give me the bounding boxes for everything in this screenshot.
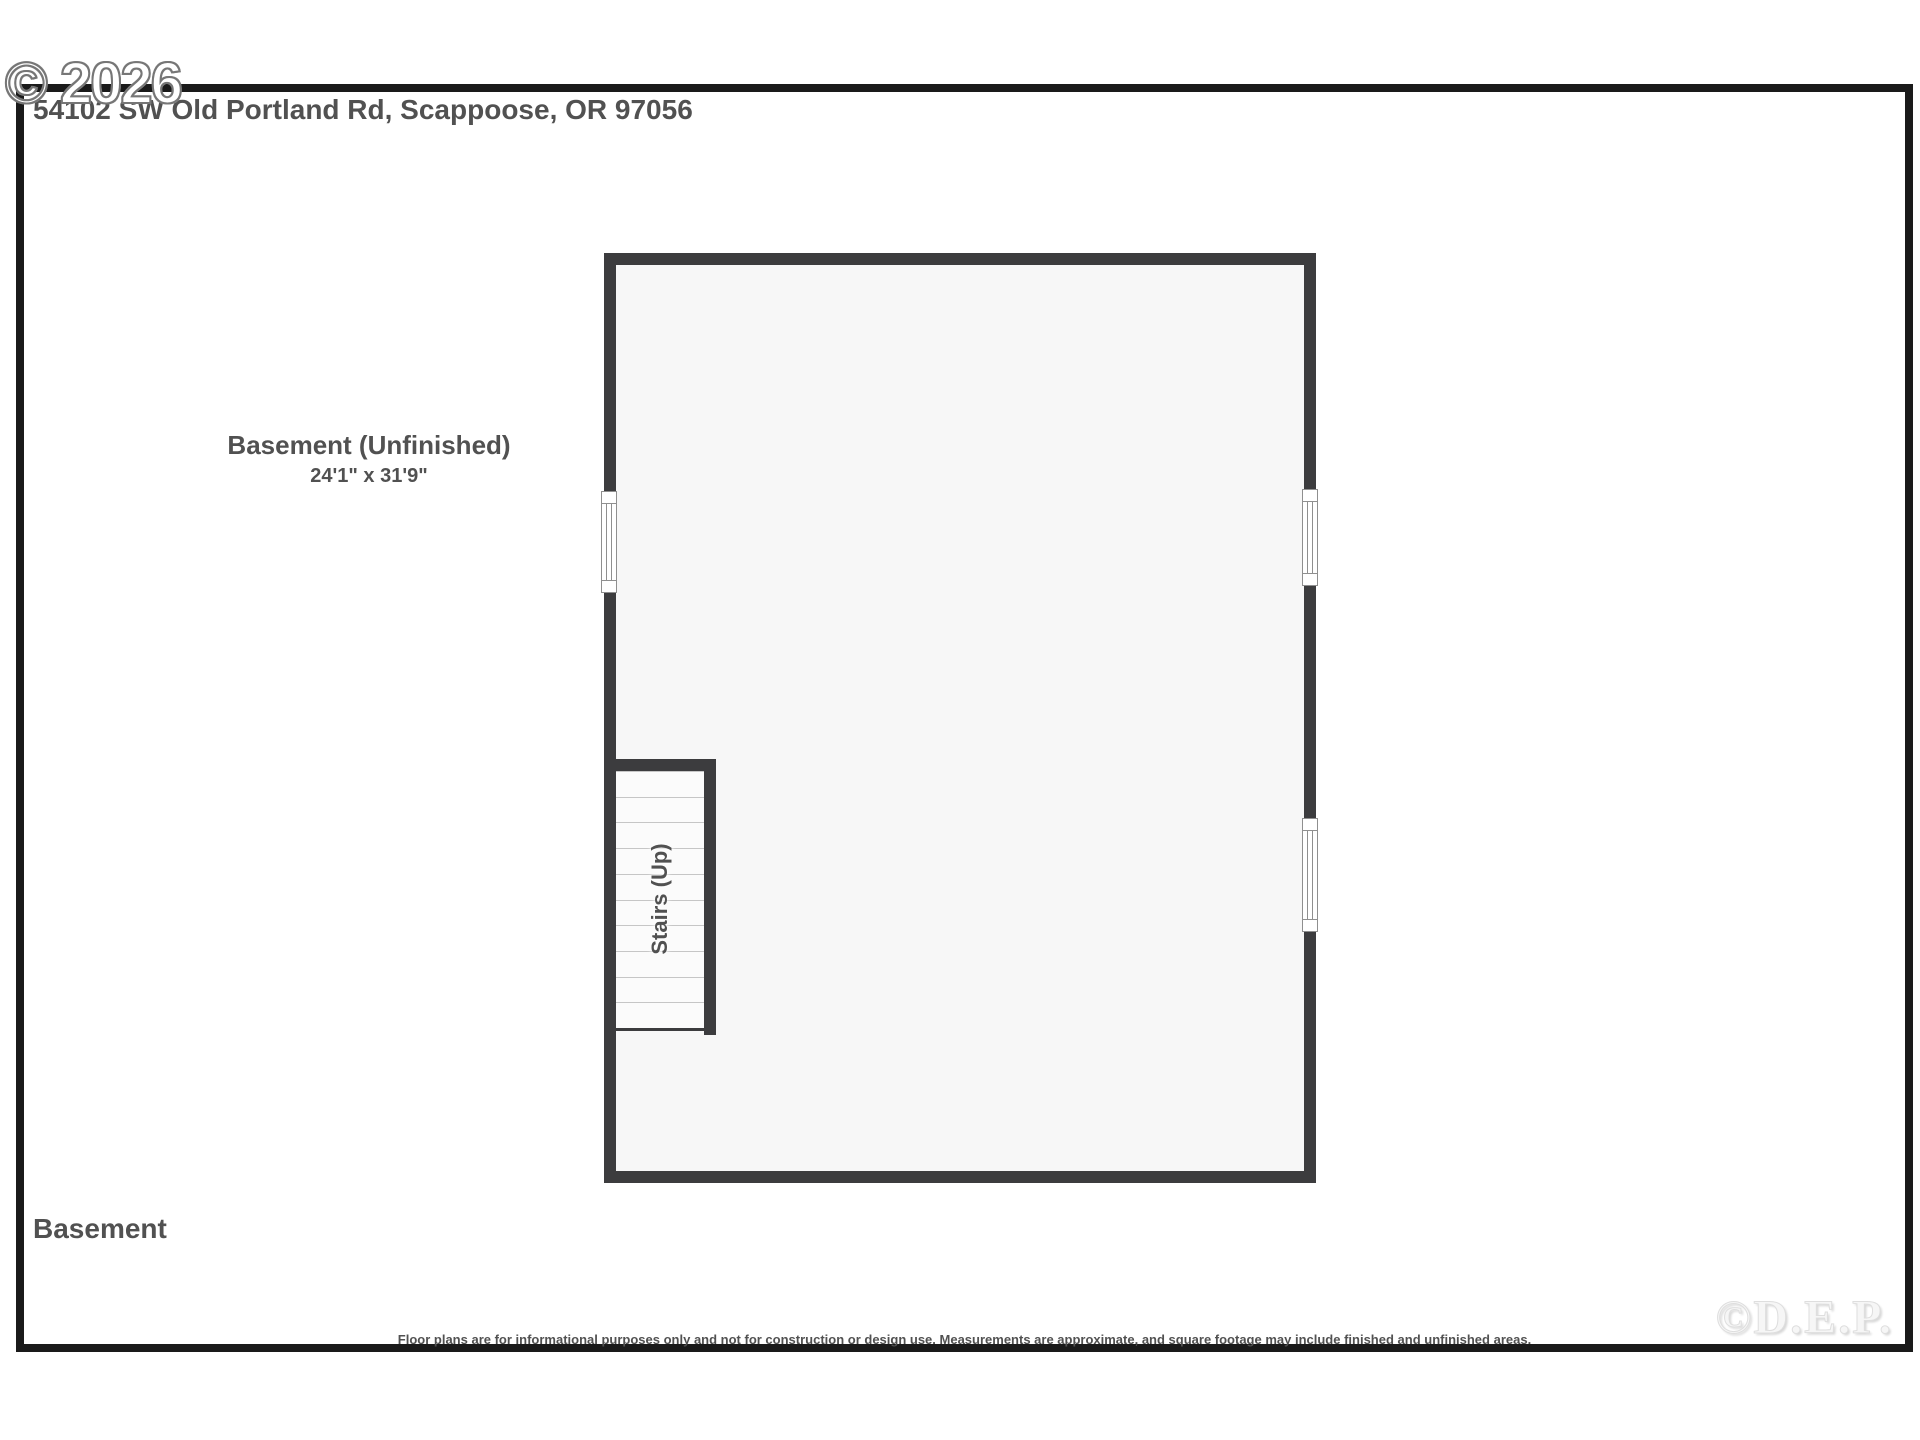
window-glass [1307, 831, 1313, 919]
stairs-label: Stairs (Up) [647, 843, 673, 954]
window-sill [1303, 573, 1317, 585]
window-sill [1303, 819, 1317, 831]
window-glass [1307, 502, 1313, 573]
room-label: Basement (Unfinished) 24'1" x 31'9" [227, 430, 510, 488]
stairs-step [616, 978, 704, 1004]
brand-watermark: ©D.E.P. [1716, 1290, 1893, 1345]
window-sill [602, 492, 616, 504]
left-wall-window [601, 491, 617, 593]
window-sill [602, 580, 616, 592]
window-glass [606, 504, 612, 580]
basement-floor-plan [604, 253, 1316, 1183]
room-name: Basement (Unfinished) [227, 430, 510, 461]
copyright-year-watermark: © 2026 [5, 50, 181, 117]
window-sill [1303, 490, 1317, 502]
stairs-right-wall [704, 759, 716, 1035]
window-sill [1303, 919, 1317, 931]
stairs-step [616, 952, 704, 978]
stairs-bottom-edge [604, 1028, 704, 1031]
basement-room-area [616, 265, 1304, 1171]
stairs-step [616, 1003, 704, 1028]
stairs-step [616, 772, 704, 798]
stairs-step [616, 798, 704, 824]
right-wall-upper-window [1302, 489, 1318, 586]
right-wall-lower-window [1302, 818, 1318, 932]
disclaimer-text: Floor plans are for informational purpos… [16, 1332, 1913, 1347]
stairs-top-wall [604, 759, 716, 771]
floor-name-label: Basement [33, 1213, 167, 1245]
room-dimensions: 24'1" x 31'9" [227, 465, 510, 488]
floor-plan-page: 54102 SW Old Portland Rd, Scappoose, OR … [0, 0, 1920, 1440]
